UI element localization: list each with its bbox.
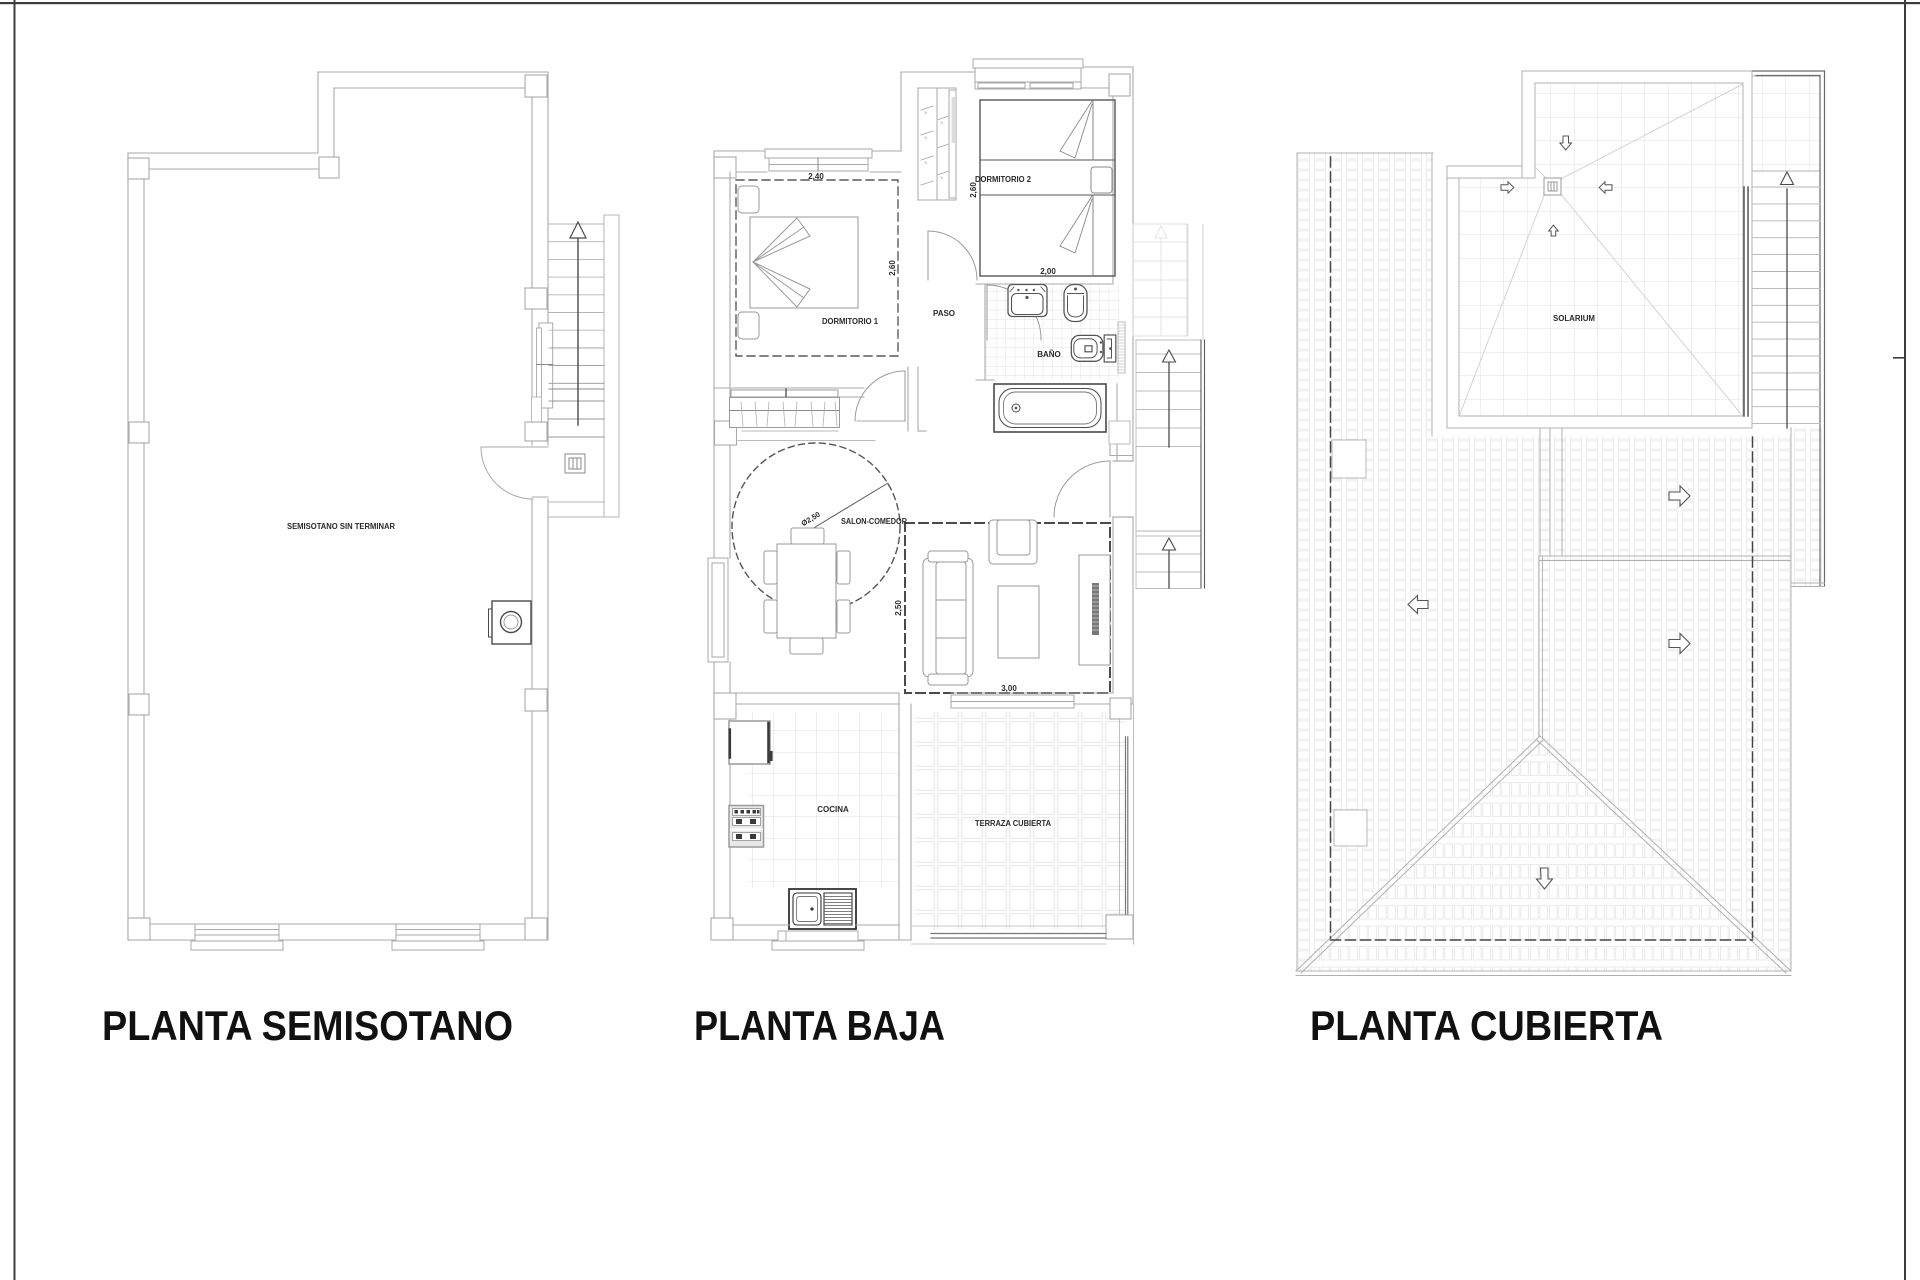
svg-text:COCINA: COCINA [817, 805, 849, 814]
svg-text:BAÑO: BAÑO [1037, 350, 1061, 359]
svg-text:2,60: 2,60 [888, 260, 897, 276]
svg-text:PASO: PASO [933, 309, 955, 318]
svg-text:PLANTA CUBIERTA: PLANTA CUBIERTA [1310, 1002, 1663, 1049]
svg-text:TERRAZA CUBIERTA: TERRAZA CUBIERTA [975, 819, 1051, 828]
svg-text:2,00: 2,00 [1040, 267, 1056, 276]
svg-text:SOLARIUM: SOLARIUM [1553, 314, 1595, 323]
svg-text:SALON-COMEDOR: SALON-COMEDOR [841, 517, 907, 526]
svg-text:DORMITORIO 1: DORMITORIO 1 [822, 317, 879, 326]
svg-text:3,00: 3,00 [1001, 684, 1017, 693]
svg-text:PLANTA BAJA: PLANTA BAJA [694, 1002, 945, 1049]
svg-text:2,60: 2,60 [969, 182, 978, 198]
svg-text:DORMITORIO 2: DORMITORIO 2 [975, 175, 1032, 184]
svg-text:2,50: 2,50 [894, 600, 903, 616]
svg-text:2,40: 2,40 [808, 172, 824, 181]
svg-text:SEMISOTANO SIN TERMINAR: SEMISOTANO SIN TERMINAR [287, 522, 395, 531]
svg-text:PLANTA SEMISOTANO: PLANTA SEMISOTANO [102, 1002, 513, 1049]
